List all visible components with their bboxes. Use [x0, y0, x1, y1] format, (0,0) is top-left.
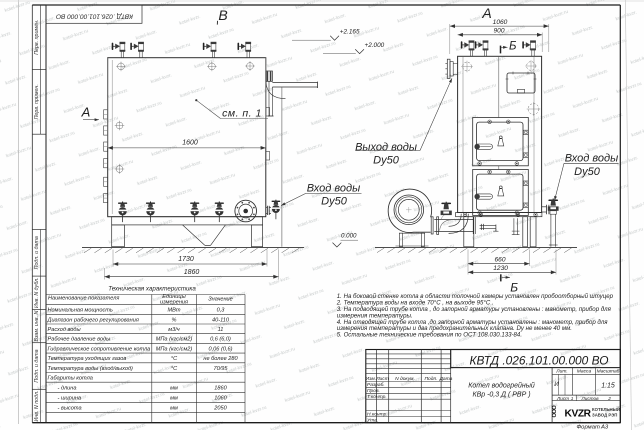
svg-text:2050: 2050: [213, 406, 227, 412]
svg-text:Лист: Лист: [375, 376, 389, 382]
svg-text:1600: 1600: [182, 140, 198, 147]
svg-text:1730: 1730: [178, 256, 194, 263]
svg-text:5. Остальные технические треб: 5. Остальные технические требования по О…: [337, 332, 522, 339]
svg-text:Номинальная мощность: Номинальная мощность: [48, 308, 113, 314]
svg-text:мм: мм: [170, 396, 178, 402]
svg-text:Наименование показателя: Наименование показателя: [48, 296, 119, 302]
svg-text:1060: 1060: [214, 396, 227, 402]
svg-text:Dy50: Dy50: [373, 155, 400, 167]
svg-text:°С: °С: [171, 366, 178, 372]
svg-text:А: А: [81, 105, 91, 120]
svg-text:Гидравлическое сопротивление к: Гидравлическое сопротивление котла: [48, 346, 151, 352]
svg-text:КВТД .026.101.00.000 ВО: КВТД .026.101.00.000 ВО: [470, 354, 609, 367]
svg-text:Формат: Формат: [577, 424, 600, 430]
svg-text:Разраб.: Разраб.: [367, 382, 385, 388]
svg-text:мм: мм: [170, 385, 178, 391]
svg-text:МВт: МВт: [167, 308, 180, 314]
svg-text:Дата: Дата: [438, 376, 452, 382]
svg-text:Вход воды: Вход воды: [565, 152, 618, 164]
svg-text:2: 2: [607, 396, 611, 401]
svg-text:40-110: 40-110: [212, 317, 230, 323]
svg-text:И: И: [554, 381, 559, 388]
svg-text:900: 900: [493, 27, 504, 34]
svg-text:- высота: - высота: [58, 406, 82, 412]
svg-text:70/95: 70/95: [214, 366, 229, 372]
svg-text:Температура уходящих газов: Температура уходящих газов: [48, 356, 127, 362]
svg-text:Перв. примен.: Перв. примен.: [34, 84, 40, 119]
svg-text:+2.165: +2.165: [340, 28, 360, 35]
svg-text:Масштаб: Масштаб: [597, 369, 620, 375]
svg-text:Инв. N подл.: Инв. N подл.: [34, 391, 40, 422]
svg-text:+2.000: +2.000: [365, 42, 385, 49]
svg-text:Подп.: Подп.: [424, 376, 437, 382]
svg-text:мм: мм: [170, 406, 178, 412]
svg-text:1230: 1230: [493, 265, 508, 272]
svg-text:Температура воды (вход/выход): Температура воды (вход/выход): [48, 366, 134, 372]
svg-text:ЗАВОД РЭП: ЗАВОД РЭП: [592, 413, 617, 418]
svg-text:А: А: [481, 5, 491, 21]
svg-text:660: 660: [494, 256, 505, 263]
svg-text:1: 1: [571, 396, 574, 401]
svg-text:Масса: Масса: [577, 369, 592, 375]
svg-text:Пров.: Пров.: [367, 388, 380, 394]
svg-text:1060: 1060: [493, 19, 508, 26]
svg-text:0.000: 0.000: [341, 233, 357, 240]
svg-text:- длина: - длина: [58, 385, 77, 391]
svg-text:11: 11: [218, 327, 224, 333]
svg-text:0,06 (0,6): 0,06 (0,6): [209, 346, 233, 352]
svg-text:Лист: Лист: [556, 396, 569, 401]
svg-text:Б: Б: [509, 41, 517, 53]
svg-text:Перв. примен.: Перв. примен.: [34, 20, 40, 55]
svg-text:Т.контр.: Т.контр.: [367, 394, 387, 400]
svg-text:м3/ч: м3/ч: [168, 327, 179, 333]
svg-text:Dy50: Dy50: [574, 166, 601, 178]
svg-text:Изм.: Изм.: [366, 376, 376, 382]
svg-text:Расход воды: Расход воды: [48, 327, 81, 333]
svg-text:0,6 (6,0): 0,6 (6,0): [210, 337, 231, 343]
svg-text:°С: °С: [171, 356, 178, 362]
svg-text:N докум.: N докум.: [395, 376, 415, 382]
svg-text:Подп. и дата: Подп. и дата: [34, 349, 40, 382]
svg-text:1860: 1860: [184, 269, 200, 276]
svg-text:Лит.: Лит.: [555, 369, 567, 375]
svg-text:не более 280: не более 280: [203, 356, 238, 362]
svg-text:Взам. инв. N: Взам. инв. N: [34, 311, 40, 342]
svg-text:0,3: 0,3: [217, 308, 226, 314]
svg-text:Значение: Значение: [208, 297, 233, 303]
svg-text:Рабочее давление воды: Рабочее давление воды: [48, 337, 111, 343]
svg-text:Котел водогрейный: Котел водогрейный: [468, 381, 535, 389]
svg-text:Утв.: Утв.: [367, 418, 378, 424]
svg-text:Вход воды: Вход воды: [307, 183, 360, 195]
svg-text:Выход воды: Выход воды: [355, 141, 417, 153]
svg-text:Листов: Листов: [581, 396, 600, 401]
svg-text:КВТД .026.101.00.000 ВО: КВТД .026.101.00.000 ВО: [55, 13, 133, 20]
svg-text:Н.контр.: Н.контр.: [367, 411, 388, 417]
svg-text:Dy50: Dy50: [321, 196, 348, 208]
svg-text:Диапазон рабочего регулировани: Диапазон рабочего регулирования: [47, 317, 139, 323]
svg-text:Габариты котла: Габариты котла: [48, 375, 93, 381]
svg-text:КВр -0,3 Д ( РВР ): КВр -0,3 Д ( РВР ): [472, 391, 530, 398]
svg-text:1:15: 1:15: [601, 382, 615, 389]
svg-text:Инв. N дубл.: Инв. N дубл.: [34, 277, 40, 308]
svg-text:см. п. 1: см. п. 1: [222, 108, 262, 120]
svg-text:KVZR: KVZR: [565, 409, 592, 420]
svg-text:Подп. и дата: Подп. и дата: [34, 236, 40, 269]
svg-text:КОТЕЛЬНЫЙ: КОТЕЛЬНЫЙ: [592, 407, 620, 412]
svg-text:измерения: измерения: [160, 300, 188, 306]
svg-text:1860: 1860: [214, 385, 227, 391]
svg-text:В: В: [218, 7, 227, 23]
svg-text:МПа (кгс/см2): МПа (кгс/см2): [156, 337, 193, 343]
svg-text:ООО: ООО: [552, 405, 558, 418]
svg-text:%: %: [172, 317, 177, 323]
svg-text:МПа (кгс/см2): МПа (кгс/см2): [156, 346, 193, 352]
svg-text:А3: А3: [600, 424, 609, 430]
svg-text:- ширина: - ширина: [58, 396, 82, 402]
svg-text:Техническая характеристика: Техническая характеристика: [108, 286, 196, 293]
